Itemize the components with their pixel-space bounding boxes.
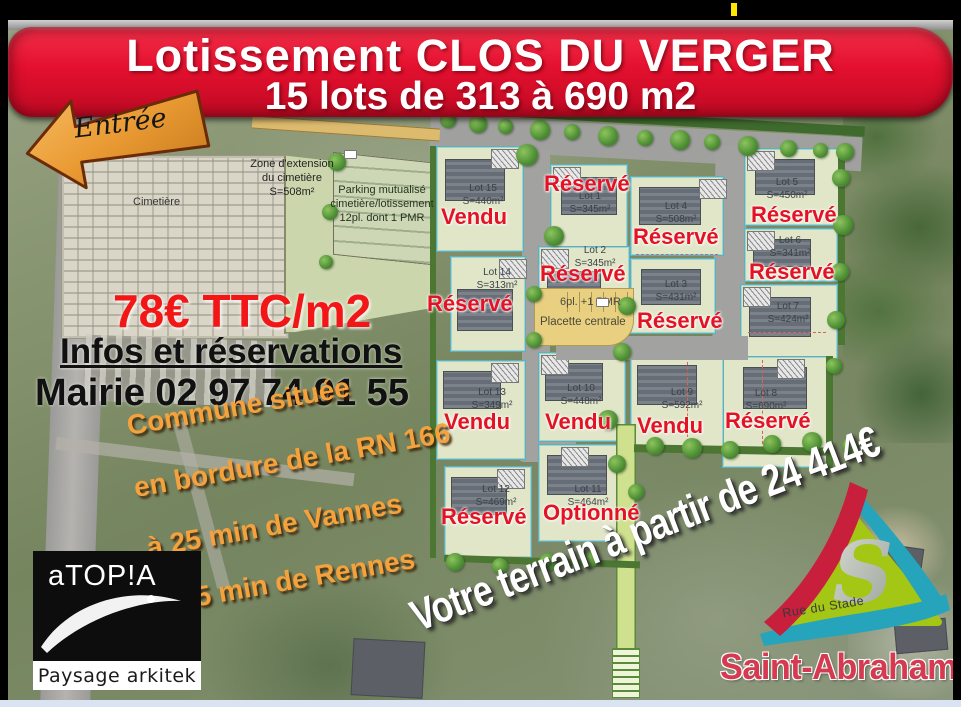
lot-name-3: Lot 3 bbox=[641, 279, 711, 292]
lot-label-3: Lot 3S=431m² bbox=[641, 279, 711, 304]
central-square-label: Placette centrale bbox=[540, 316, 626, 328]
lot-name-8: Lot 8 bbox=[731, 388, 801, 401]
lot-carport-15 bbox=[491, 149, 519, 169]
lot-status-14: Réservé bbox=[427, 291, 513, 317]
tree-icon bbox=[526, 332, 542, 348]
designer-logo-name: aTOP!A bbox=[48, 560, 198, 593]
lot-status-8: Réservé bbox=[725, 408, 811, 434]
frame-right bbox=[953, 0, 961, 707]
lot-label-7: Lot 7S=424m² bbox=[753, 301, 823, 326]
lot-name-13: Lot 13 bbox=[457, 387, 527, 400]
tree-icon bbox=[637, 130, 653, 146]
tree-icon bbox=[827, 311, 845, 329]
tree-icon bbox=[826, 358, 842, 374]
price-per-m2: 78€ TTC/m2 bbox=[113, 284, 371, 338]
lot-area-3: S=431m² bbox=[641, 292, 711, 305]
tree-icon bbox=[564, 124, 580, 140]
commune-logo: S bbox=[758, 482, 958, 672]
tree-icon bbox=[544, 226, 564, 246]
house-roof bbox=[351, 638, 426, 699]
lot-area-7: S=424m² bbox=[753, 314, 823, 327]
lot-status-1: Réservé bbox=[544, 171, 630, 197]
lot-name-7: Lot 7 bbox=[753, 301, 823, 314]
lot-name-11: Lot 11 bbox=[553, 484, 623, 497]
cemetery-label: Cimetière bbox=[133, 196, 180, 208]
lot-name-6: Lot 6 bbox=[755, 235, 825, 248]
info-heading: Infos et réservations bbox=[60, 332, 402, 372]
parking-label: Parking mutualisé cimetière/lotissement … bbox=[322, 184, 442, 225]
lot-status-10: Vendu bbox=[545, 409, 611, 435]
lot-label-10: Lot 10S=448m² bbox=[546, 383, 616, 408]
van-icon bbox=[596, 298, 609, 307]
lot-label-5: Lot 5S=450m² bbox=[752, 177, 822, 202]
lot-status-3: Réservé bbox=[637, 308, 723, 334]
lot-status-12: Réservé bbox=[441, 504, 527, 530]
lot-name-14: Lot 14 bbox=[462, 267, 532, 280]
lot-status-6: Réservé bbox=[749, 259, 835, 285]
lot-label-14: Lot 14S=313m² bbox=[462, 267, 532, 292]
lot-carport-11 bbox=[561, 447, 589, 467]
tree-icon bbox=[836, 143, 854, 161]
tree-icon bbox=[516, 144, 538, 166]
lot-name-9: Lot 9 bbox=[647, 387, 717, 400]
poster: Lot 1S=345m²RéservéLot 2S=345m²RéservéLo… bbox=[0, 0, 961, 707]
tree-icon bbox=[721, 441, 739, 459]
tree-icon bbox=[598, 126, 618, 146]
tree-icon bbox=[498, 119, 513, 134]
lot-name-5: Lot 5 bbox=[752, 177, 822, 190]
lot-label-9: Lot 9S=592m² bbox=[647, 387, 717, 412]
tree-icon bbox=[628, 484, 644, 500]
tree-icon bbox=[738, 136, 758, 156]
window-top-bar bbox=[0, 0, 961, 20]
lot-name-15: Lot 15 bbox=[448, 183, 518, 196]
lot-area-9: S=592m² bbox=[647, 400, 717, 413]
tree-icon bbox=[670, 130, 690, 150]
commune-name: Saint-Abraham bbox=[720, 646, 957, 688]
lot-carport-8 bbox=[777, 359, 805, 379]
lot-label-6: Lot 6S=341m² bbox=[755, 235, 825, 260]
square-parking-note: 6pl. +1 PMR bbox=[560, 296, 621, 308]
tree-icon bbox=[832, 169, 850, 187]
lot-carport-4 bbox=[699, 179, 727, 199]
frame-bottom bbox=[0, 700, 961, 707]
tree-icon bbox=[780, 140, 797, 157]
tree-icon bbox=[613, 343, 631, 361]
tree-icon bbox=[813, 143, 828, 158]
lot-area-1: S=345m² bbox=[555, 204, 625, 217]
text-cursor bbox=[731, 3, 737, 16]
lot-name-10: Lot 10 bbox=[546, 383, 616, 396]
tree-icon bbox=[704, 134, 720, 150]
lot-area-5: S=450m² bbox=[752, 190, 822, 203]
lot-area-10: S=448m² bbox=[546, 396, 616, 409]
tree-icon bbox=[646, 437, 664, 455]
green-footpath-steps bbox=[612, 648, 640, 698]
lot-label-4: Lot 4S=508m² bbox=[641, 201, 711, 226]
lot-name-2: Lot 2 bbox=[560, 245, 630, 258]
lot-carport-13 bbox=[491, 363, 519, 383]
lot-name-12: Lot 12 bbox=[461, 484, 531, 497]
tree-icon bbox=[446, 553, 464, 571]
designer-logo-tagline: Paysage arkitek bbox=[38, 665, 196, 687]
tree-icon bbox=[682, 438, 702, 458]
tree-icon bbox=[608, 455, 626, 473]
setback-dashed-line bbox=[636, 254, 718, 255]
lot-status-15: Vendu bbox=[441, 204, 507, 230]
frame-left bbox=[0, 0, 8, 707]
designer-logo-tagline-band: Paysage arkitek bbox=[33, 661, 201, 690]
lot-name-4: Lot 4 bbox=[641, 201, 711, 214]
lot-status-13: Vendu bbox=[444, 409, 510, 435]
lot-status-5: Réservé bbox=[751, 202, 837, 228]
lot-status-2: Réservé bbox=[540, 261, 626, 287]
tree-icon bbox=[530, 120, 550, 140]
setback-dashed-line bbox=[748, 332, 826, 333]
lot-status-4: Réservé bbox=[633, 224, 719, 250]
car-icon bbox=[344, 150, 357, 159]
lot-status-9: Vendu bbox=[637, 413, 703, 439]
tree-icon bbox=[319, 255, 333, 269]
